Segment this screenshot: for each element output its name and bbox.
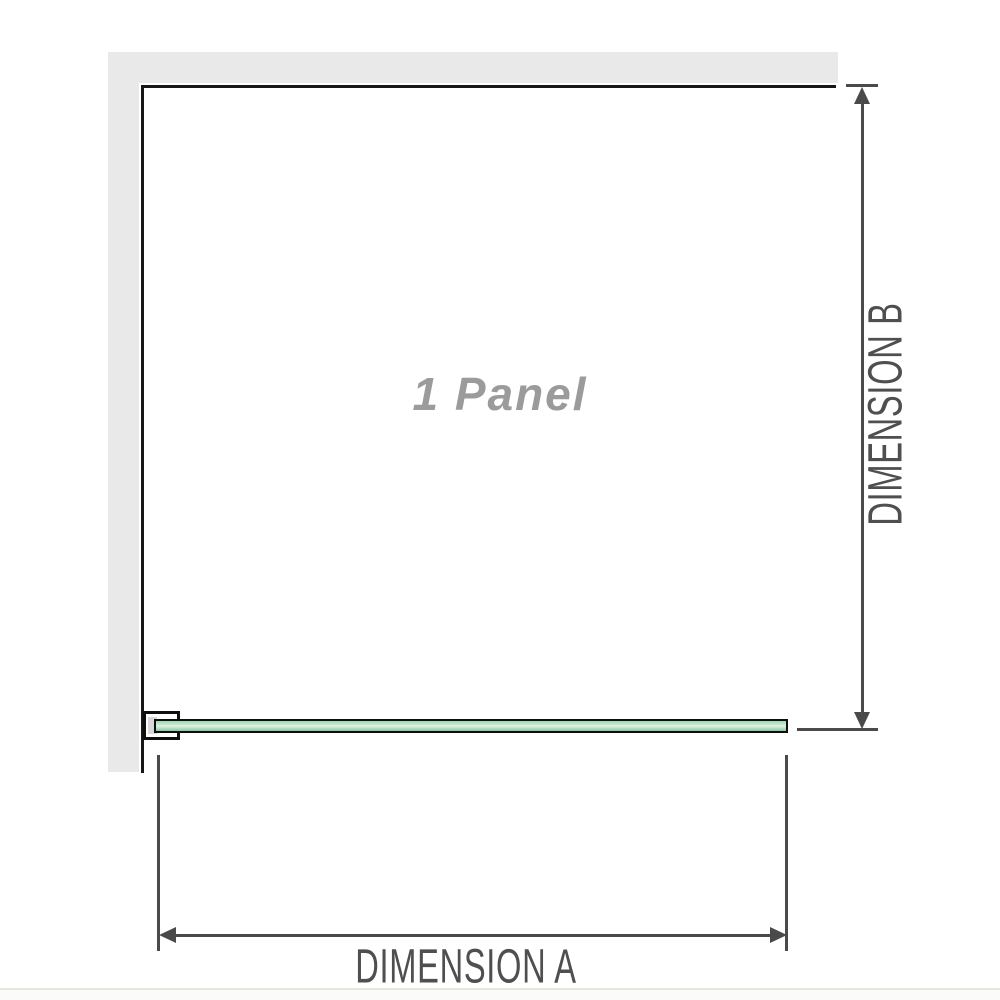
panel-count-label: 1 Panel bbox=[412, 367, 587, 421]
diagram-canvas: 1 Panel DIMENSION B DIMENSION A bbox=[0, 0, 1000, 1000]
wall-top-bar bbox=[108, 52, 838, 83]
dimension-a-label: DIMENSION A bbox=[355, 940, 576, 995]
arrow-right-icon bbox=[770, 927, 787, 943]
glass-panel-bar bbox=[154, 719, 788, 733]
arrow-left-icon bbox=[159, 927, 176, 943]
bottom-strip bbox=[0, 990, 1000, 1000]
arrow-up-icon bbox=[854, 87, 870, 104]
panel-outline-left-edge bbox=[141, 85, 144, 773]
dimension-a-left-extension-line bbox=[157, 755, 160, 951]
wall-left-bar bbox=[108, 52, 139, 772]
dimension-b-label: DIMENSION B bbox=[859, 302, 914, 525]
panel-outline-top-edge bbox=[141, 85, 836, 88]
arrow-down-icon bbox=[854, 712, 870, 729]
dimension-a-right-extension-line bbox=[785, 755, 788, 951]
dimension-a-line bbox=[172, 934, 772, 937]
